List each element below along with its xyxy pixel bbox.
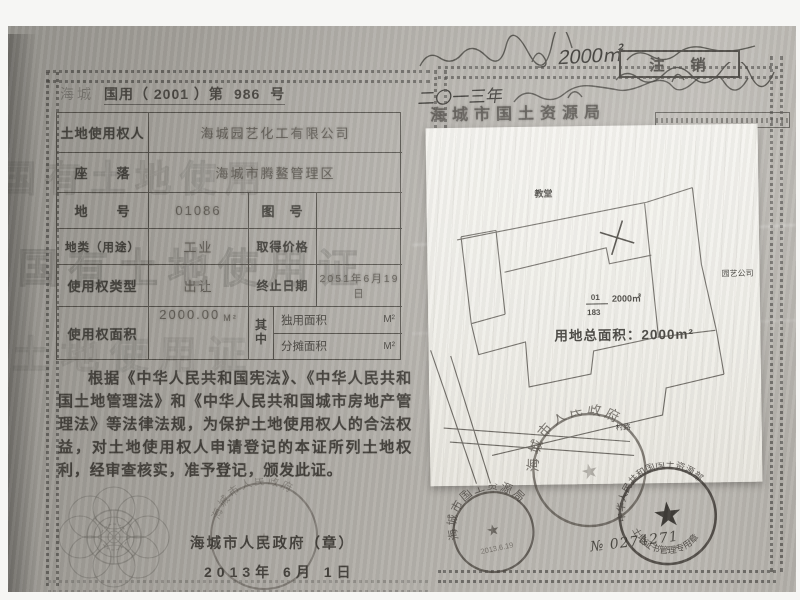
area-unit: M² [223,313,238,323]
road-label: 村路 [616,421,632,431]
ornament-border-right [770,56,783,572]
issuer-name: 海城市人民政府（章） [190,532,420,553]
certificate-control-number: № 0274271 [589,529,679,556]
shared-area-row: 分摊面积 M² [274,334,402,360]
field-label-rights-holder: 土地使用权人 [57,113,149,153]
field-value-plot-number: 01086 [149,193,249,229]
parcel-area-note: 2000㎡ [612,292,641,303]
field-label-exclusive-area: 独用面积 [281,312,327,328]
area-number: 2000.00 [159,307,220,322]
map-sheet-number: 183 [587,308,601,317]
certificate-left-page: 国有土地使用 国有土地使用证 土地使用证 海城国用（ 2001 ）第986号 土… [8,26,432,592]
svg-text:海城市国土资源局: 海城市国土资源局 [438,476,534,541]
field-label-of-which: 其中 [249,307,274,359]
field-label-land-use: 地类（用途） [57,229,149,265]
site-plan-drawing: 教堂 园艺公司 村路 01 183 2000㎡ 用地总面积：2000m² [426,124,763,487]
field-label-shared-area: 分摊面积 [281,338,327,354]
field-label-area: 使用权面积 [57,307,149,359]
exclusive-area-row: 独用面积 M² [274,307,402,334]
field-value-land-use: 工业 [149,229,249,265]
survey-cross-mark [595,215,640,260]
ornament-border-top-left [46,70,430,83]
svg-text:海城市人民政府: 海城市人民政府 [208,478,296,521]
serial-suffix: 号 [270,86,285,102]
field-label-plot-number: 地 号 [57,193,149,229]
bureau-stamp-arc-text: 海城市国土资源局 [438,476,534,541]
serial-number: 986 [234,86,260,102]
site-plan-sheet: 教堂 园艺公司 村路 01 183 2000㎡ 用地总面积：2000m² [426,124,763,487]
serial-main: 国用（ 2001 ）第 [104,86,224,102]
area-breakdown-cell: 其中 独用面积 M² 分摊面积 M² [249,307,402,359]
field-label-right-type: 使用权类型 [57,265,149,307]
parcel-number: 01 [591,293,601,302]
field-label-end-date: 终止日期 [249,265,317,307]
field-value-area: 2000.00 M² [149,307,249,359]
serial-city-prefix: 海城 [60,86,94,102]
area-breakdown-rows: 独用面积 M² 分摊面积 M² [274,307,402,359]
issue-date: 2013年 6月 1日 [190,562,420,582]
legal-statement-paragraph: 根据《中华人民共和国宪法》、《中华人民共和国土地管理法》和《中华人民共和国城市房… [58,368,412,483]
field-value-right-type: 出让 [149,265,249,307]
field-label-location: 座 落 [57,153,149,193]
field-label-price: 取得价格 [249,229,317,265]
land-details-table: 土地使用权人 海城园艺化工有限公司 座 落 海城市腾鳌管理区 地 号 01086… [56,112,401,360]
field-value-location: 海城市腾鳌管理区 [149,153,402,193]
svg-text:★: ★ [485,521,502,540]
field-value-rights-holder: 海城园艺化工有限公司 [149,113,402,153]
field-label-map-number: 图 号 [249,193,317,229]
certificate-right-page: 2000㎡ 注销 二〇一三年 海城市国土资源局 [412,26,796,592]
building-label: 教堂 [533,188,552,199]
field-value-map-number [317,193,402,229]
land-bureau-name: 海城市国土资源局 [430,98,606,125]
field-value-end-date: 2051年6月19日 [317,265,402,307]
photo-of-land-certificate: { "colors":{"paper":"#b0ada7","ink":"#40… [0,0,800,600]
exclusive-area-unit: M² [383,314,395,325]
field-value-price [317,229,402,265]
bureau-stamp-date: 2013.6.19 [480,540,515,556]
ornament-border-bottom-right [438,570,776,583]
issuer-block: 海城市人民政府（章） 2013年 6月 1日 [190,532,420,582]
embossed-rosette-seal [42,478,192,592]
certificate-serial-header: 海城国用（ 2001 ）第986号 [60,84,285,104]
neighbor-label: 园艺公司 [722,269,754,278]
shared-area-unit: M² [383,341,395,352]
certificate-photo: 国有土地使用 国有土地使用证 土地使用证 海城国用（ 2001 ）第986号 土… [8,26,796,592]
total-area-text: 用地总面积：2000m² [554,326,694,344]
government-seal-arc-text: 海城市人民政府 [208,478,296,521]
